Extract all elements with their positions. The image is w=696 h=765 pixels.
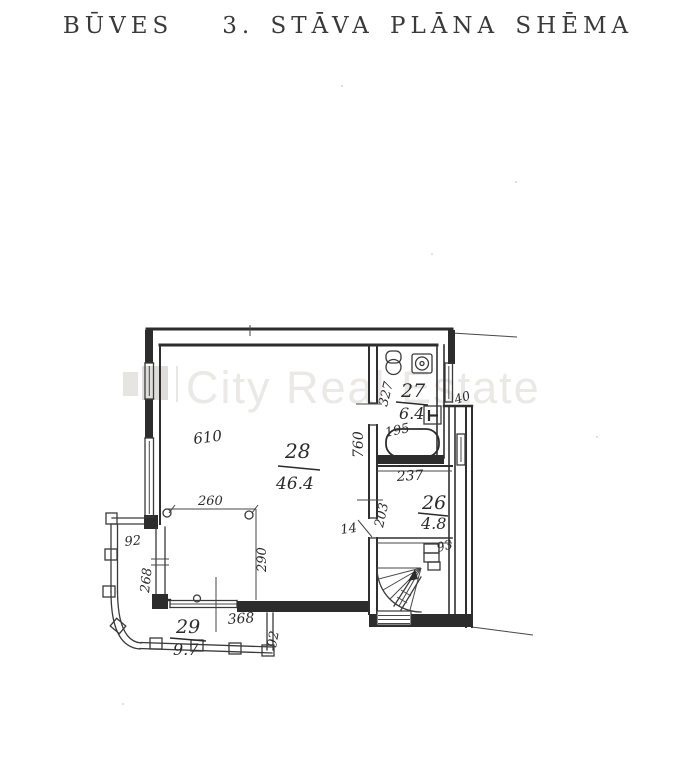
watermark-logo-block-large: [142, 366, 168, 400]
room-28-area: 46.4: [275, 474, 314, 494]
watermark-logo-block-small: [123, 372, 138, 396]
dimension-610: 610: [192, 427, 223, 448]
dimension-92-left: 92: [124, 533, 142, 550]
dimension-237: 237: [395, 468, 424, 485]
room-26-area: 4.8: [420, 514, 446, 533]
floor-plan-page: BŪVES 3. STĀVA PLĀNA SHĒMA City Real Est…: [0, 0, 696, 765]
dimension-260: 260: [197, 494, 223, 509]
watermark: City Real Estate: [123, 362, 541, 413]
dimension-290: 290: [255, 547, 270, 573]
floor-plan-drawing: City Real Estate: [0, 0, 696, 765]
exterior-steps: [377, 611, 411, 625]
watermark-text: City Real Estate: [186, 362, 541, 413]
balcony-door-bottom: [160, 595, 237, 608]
window-left-lower: [145, 438, 154, 517]
room-27-area: 6.4: [399, 404, 424, 423]
dimension-760: 760: [351, 431, 367, 458]
room-29-number: 29: [175, 616, 200, 638]
room-26-number: 26: [421, 492, 446, 514]
room-29-area: 9.7: [173, 640, 199, 659]
spiral-staircase: [377, 544, 440, 625]
dimension-93: 93: [435, 536, 454, 555]
dimension-92-right: 92: [265, 630, 283, 649]
door-swing-line: [358, 520, 372, 537]
dimension-195: 195: [384, 421, 411, 441]
room-28-number: 28: [284, 439, 310, 463]
radiator: [457, 434, 465, 465]
dimension-268: 268: [138, 567, 156, 594]
zone-rectangle: [163, 505, 258, 600]
dimension-368: 368: [227, 610, 255, 628]
dimension-14: 14: [339, 521, 357, 538]
room-28-fraction-bar: [278, 466, 320, 470]
dimension-203: 203: [372, 501, 392, 529]
room-27-number: 27: [400, 380, 426, 402]
